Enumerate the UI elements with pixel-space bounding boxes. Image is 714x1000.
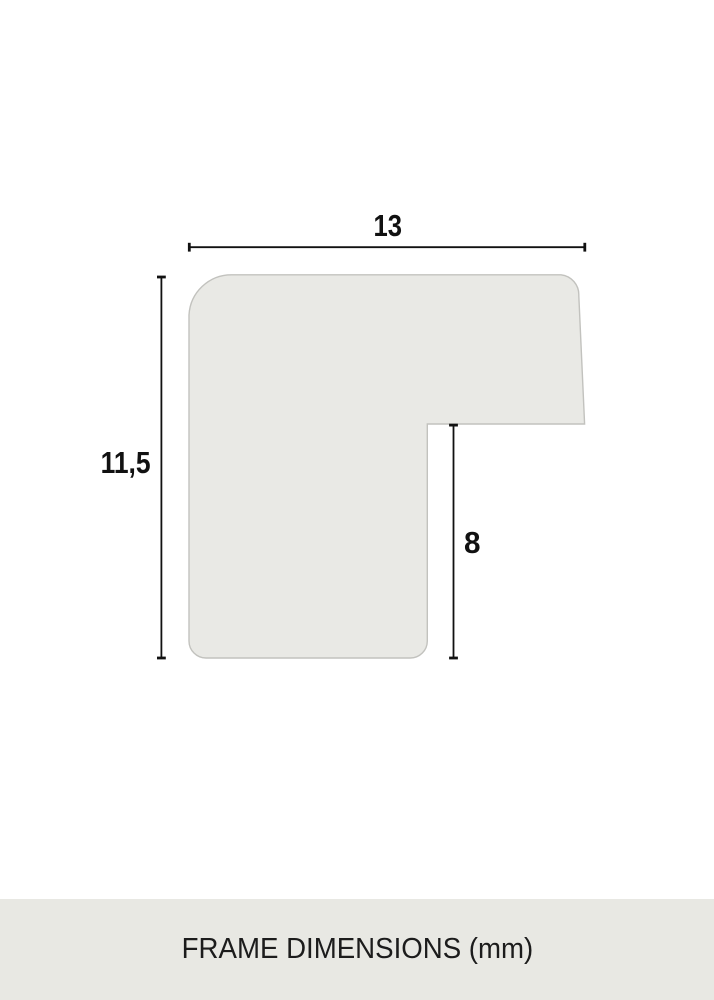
svg-text:11,5: 11,5 <box>101 445 151 480</box>
svg-text:13: 13 <box>374 208 403 243</box>
svg-text:8: 8 <box>464 525 481 560</box>
